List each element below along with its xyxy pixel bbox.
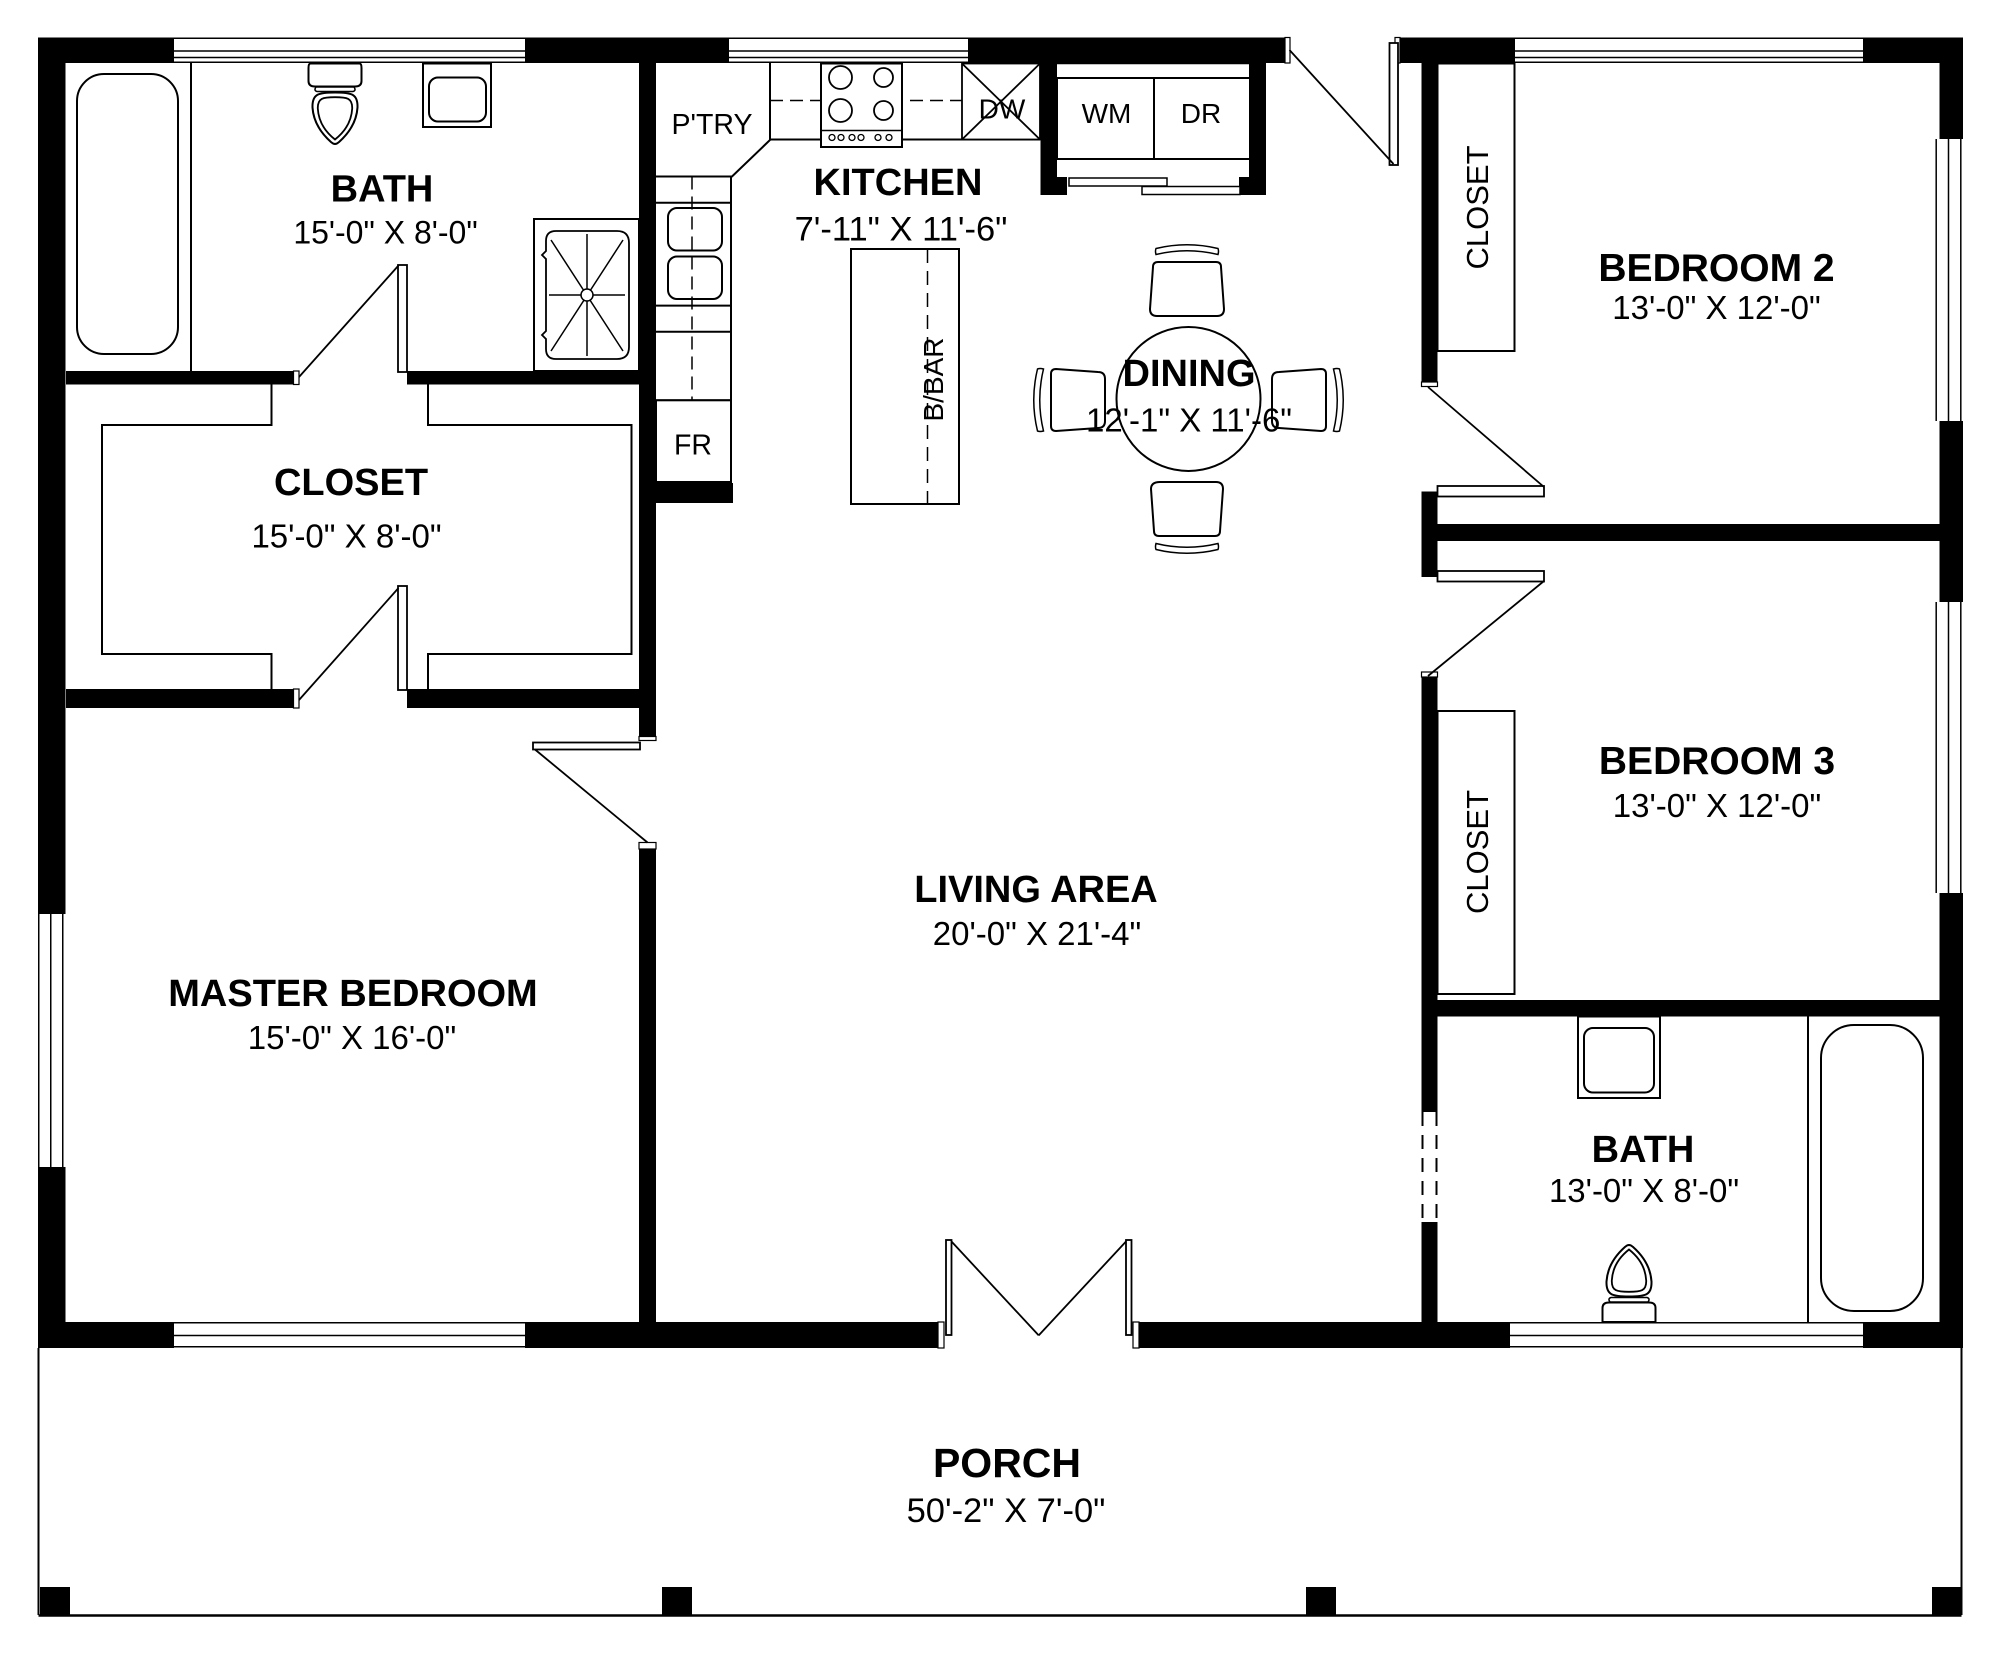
svg-text:15'-0" X 8'-0": 15'-0" X 8'-0" [293,215,477,251]
svg-text:BEDROOM 2: BEDROOM 2 [1598,247,1834,290]
svg-text:P'TRY: P'TRY [672,109,753,141]
svg-text:PORCH: PORCH [933,1440,1081,1486]
svg-text:15'-0" X 8'-0": 15'-0" X 8'-0" [251,518,441,555]
svg-text:DW: DW [979,94,1026,125]
svg-text:BATH: BATH [1592,1129,1695,1171]
svg-text:DINING: DINING [1123,353,1256,395]
svg-text:13'-0" X 12'-0": 13'-0" X 12'-0" [1612,289,1820,326]
svg-text:13'-0" X 12'-0": 13'-0" X 12'-0" [1613,787,1821,824]
svg-text:CLOSET: CLOSET [1460,790,1495,914]
svg-text:WM: WM [1082,98,1132,129]
svg-text:FR: FR [674,430,712,462]
svg-text:CLOSET: CLOSET [274,462,428,504]
svg-text:7'-11" X 11'-6": 7'-11" X 11'-6" [795,211,1008,249]
svg-text:20'-0" X 21'-4": 20'-0" X 21'-4" [933,915,1141,952]
svg-text:KITCHEN: KITCHEN [814,162,983,204]
svg-text:12'-1" X 11'-6": 12'-1" X 11'-6" [1086,402,1292,439]
svg-text:MASTER BEDROOM: MASTER BEDROOM [168,973,537,1015]
svg-text:BATH: BATH [331,169,434,211]
svg-text:50'-2" X 7'-0": 50'-2" X 7'-0" [907,1492,1106,1530]
svg-text:DR: DR [1181,98,1221,129]
svg-text:CLOSET: CLOSET [1460,145,1495,269]
svg-text:15'-0" X 16'-0": 15'-0" X 16'-0" [248,1019,456,1056]
svg-text:B/BAR: B/BAR [918,337,949,421]
svg-text:BEDROOM 3: BEDROOM 3 [1599,740,1835,783]
svg-text:LIVING AREA: LIVING AREA [914,869,1158,911]
svg-text:13'-0" X 8'-0": 13'-0" X 8'-0" [1549,1172,1739,1209]
